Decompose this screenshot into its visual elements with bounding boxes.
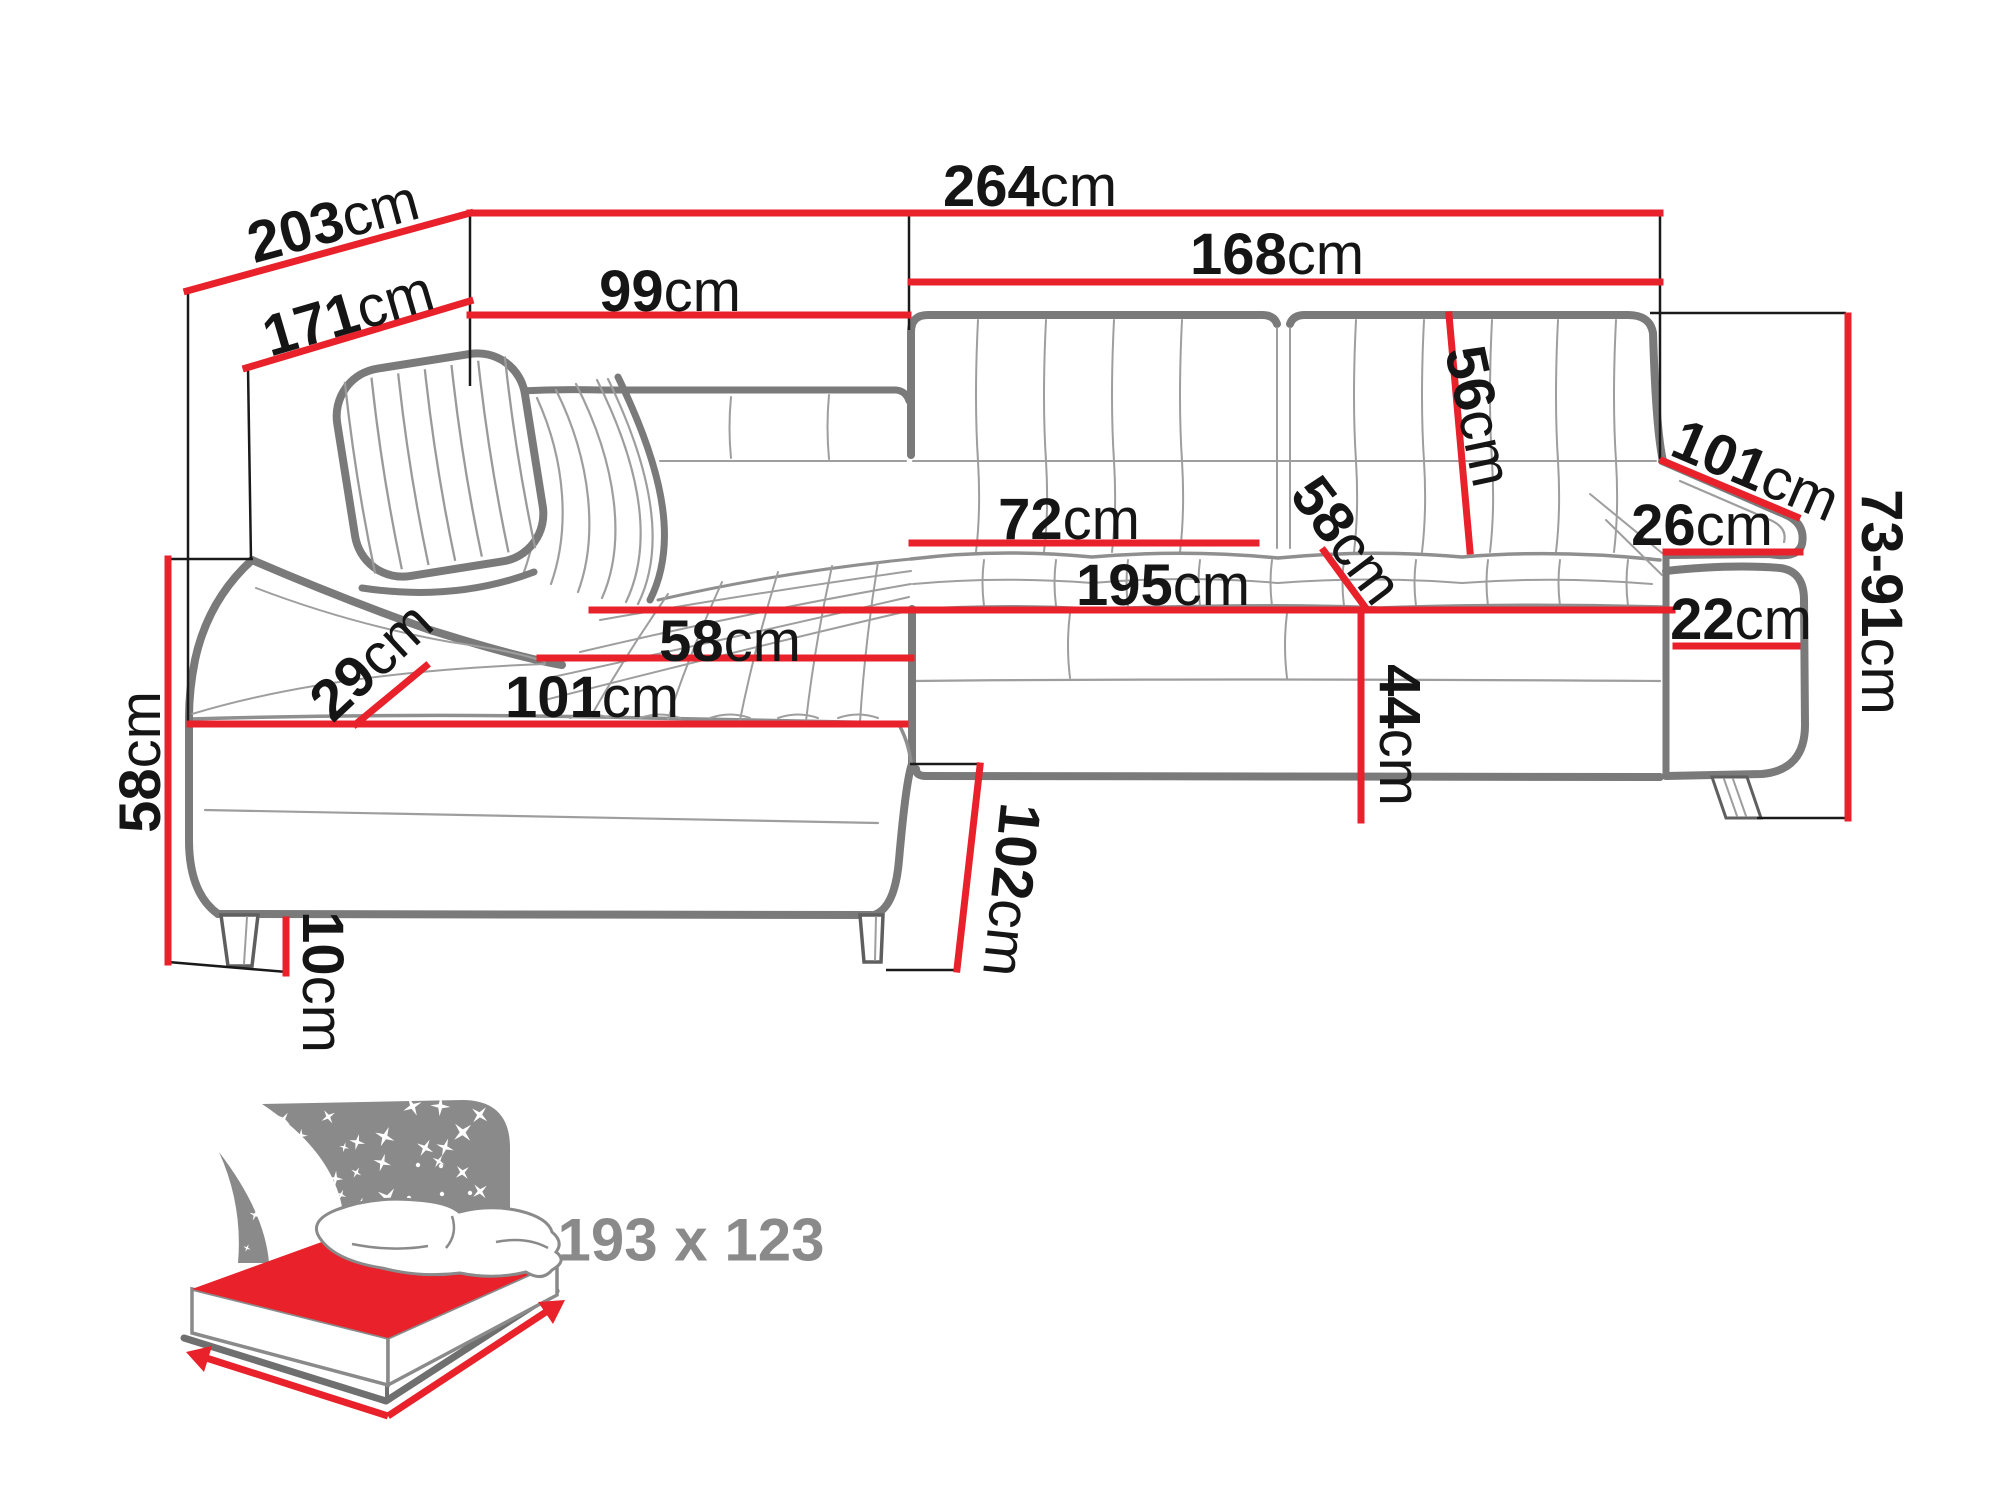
svg-text:168cm: 168cm	[1190, 222, 1364, 287]
svg-text:10cm: 10cm	[291, 911, 356, 1053]
svg-text:73-91cm: 73-91cm	[1850, 489, 1915, 715]
svg-text:26cm: 26cm	[1631, 493, 1773, 558]
svg-text:101cm: 101cm	[505, 665, 679, 730]
svg-text:195cm: 195cm	[1076, 553, 1250, 618]
svg-text:264cm: 264cm	[943, 154, 1117, 219]
svg-text:193 x 123: 193 x 123	[558, 1207, 825, 1274]
svg-text:22cm: 22cm	[1670, 587, 1812, 652]
svg-text:44cm: 44cm	[1368, 664, 1433, 806]
svg-text:99cm: 99cm	[599, 259, 741, 324]
svg-text:72cm: 72cm	[998, 487, 1140, 552]
svg-text:58cm: 58cm	[108, 691, 173, 833]
svg-text:58cm: 58cm	[659, 609, 801, 674]
